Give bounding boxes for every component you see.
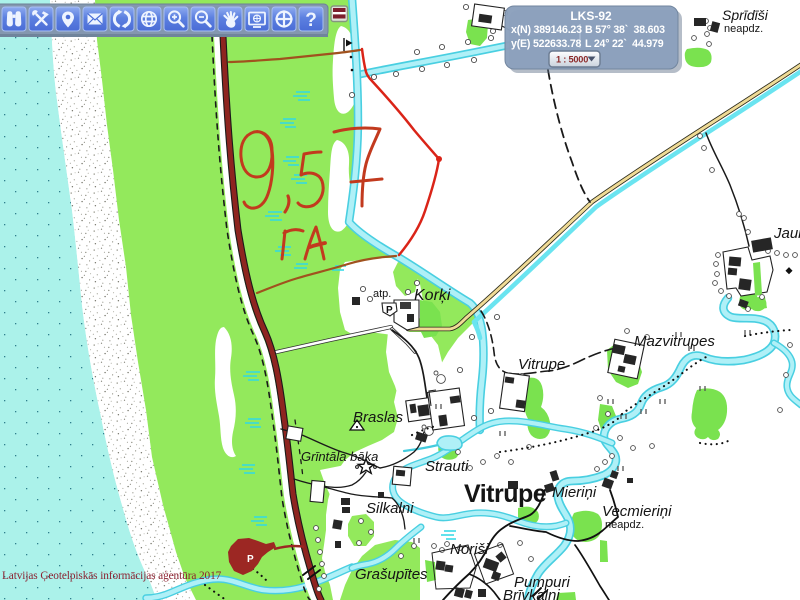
svg-text:Mieriņi: Mieriņi bbox=[552, 484, 597, 501]
svg-text:neapdz.: neapdz. bbox=[724, 23, 763, 35]
svg-text:L 24° 22` 44.979: L 24° 22` 44.979 bbox=[585, 38, 664, 50]
svg-text:Vitrupe: Vitrupe bbox=[518, 356, 565, 373]
svg-text:Vitrupe: Vitrupe bbox=[464, 480, 547, 508]
svg-text:Grašupītes: Grašupītes bbox=[355, 566, 428, 583]
svg-text:Noriši: Noriši bbox=[450, 541, 489, 558]
svg-text:Sprīdīši: Sprīdīši bbox=[722, 7, 769, 23]
svg-text:LKS-92: LKS-92 bbox=[570, 9, 612, 23]
svg-text:?: ? bbox=[305, 10, 317, 31]
svg-text:Latvijas Ģeotelpiskās informāc: Latvijas Ģeotelpiskās informācijas aģent… bbox=[2, 570, 222, 582]
svg-text:P: P bbox=[247, 554, 254, 565]
svg-text:Strauti: Strauti bbox=[425, 458, 469, 475]
svg-text:Vecmieriņi: Vecmieriņi bbox=[602, 503, 672, 520]
svg-text:Silkalni: Silkalni bbox=[366, 500, 414, 517]
svg-text:Grīntāla bāka: Grīntāla bāka bbox=[301, 449, 378, 464]
svg-text:B 57° 38` 38.603: B 57° 38` 38.603 bbox=[585, 24, 665, 36]
svg-text:Mazvitrupes: Mazvitrupes bbox=[634, 333, 715, 350]
svg-text:x(N) 389146.23: x(N) 389146.23 bbox=[511, 24, 582, 36]
svg-text:Jaunk: Jaunk bbox=[773, 225, 800, 242]
svg-text:Braslas: Braslas bbox=[353, 409, 404, 426]
svg-text:neapdz.: neapdz. bbox=[605, 519, 644, 531]
svg-text:atp.: atp. bbox=[373, 288, 391, 300]
svg-text:y(E) 522633.78: y(E) 522633.78 bbox=[511, 38, 582, 50]
svg-text:Korķi: Korķi bbox=[414, 287, 451, 304]
svg-text:P: P bbox=[386, 305, 393, 316]
svg-text:Brīvkalni: Brīvkalni bbox=[503, 587, 560, 600]
svg-text:1 : 5000: 1 : 5000 bbox=[556, 55, 588, 65]
